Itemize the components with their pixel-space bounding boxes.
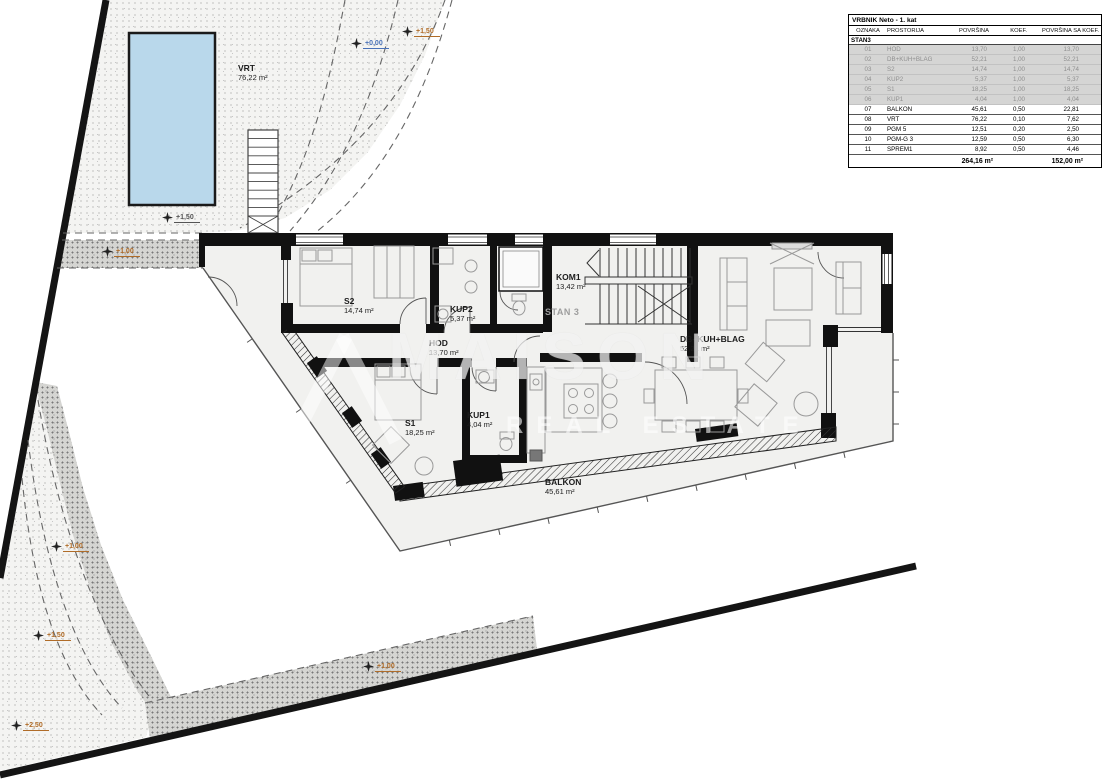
areas-table-row: 02DB+KUH+BLAG52,211,0052,21 [849,55,1101,65]
room-label-kup1: KUP1 4,04 m² [467,411,492,429]
areas-table-row: 10PGM-G 312,590,506,30 [849,135,1101,145]
survey-cross-icon [11,720,22,731]
room-label-s2: S2 14,74 m² [344,297,374,315]
areas-table-row: 07BALKON45,610,5022,81 [849,105,1101,115]
elevation-value: +1,50 [414,28,440,37]
room-label-vrt: VRT 76,22 m² [238,64,268,82]
areas-table-rows: 01HOD13,701,0013,7002DB+KUH+BLAG52,211,0… [849,45,1101,155]
survey-cross-icon [363,661,374,672]
room-label-s1: S1 18,25 m² [405,419,435,437]
areas-table-row: 06KUP14,041,004,04 [849,95,1101,105]
areas-table-row: 03S214,741,0014,74 [849,65,1101,75]
total-area-koef: 152,00 m² [1033,158,1101,165]
areas-table-total: 264,16 m² 152,00 m² [849,155,1101,167]
areas-table-row: 05S118,251,0018,25 [849,85,1101,95]
elevation-value: +1,50 [45,632,71,641]
site-plan: VRT 76,22 m² S2 14,74 m² KUP2 5,37 m² KO… [0,0,1111,782]
survey-cross-icon [102,246,113,257]
areas-table-row: 09PGM 512,510,202,50 [849,125,1101,135]
room-label-kom1: KOM1 13,42 m² [556,273,586,291]
east-window [883,254,892,284]
elevation-marker: +1,00 [363,661,401,672]
room-label-balkon: BALKON 45,61 m² [545,478,581,496]
elevation-marker: +0,00 [351,38,389,49]
elevation-marker: +1,50 [402,26,440,37]
exterior-stairs [248,130,278,233]
room-label-kup2: KUP2 5,37 m² [450,305,475,323]
elevation-value: +1,00 [114,248,140,257]
total-area: 264,16 m² [949,158,999,165]
elevation-marker: +1,00 [102,246,140,257]
areas-table-row: 04KUP25,371,005,37 [849,75,1101,85]
elevation-value: +2,50 [23,722,49,731]
survey-cross-icon [162,212,173,223]
property-boundary-line [0,0,106,578]
unit-label-stan3: STAN 3 [545,307,579,317]
elevation-marker: +2,50 [11,720,49,731]
elevation-value: +1,00 [63,543,89,552]
areas-table-row: 01HOD13,701,0013,70 [849,45,1101,55]
pool [129,33,215,205]
elevation-value: +1,50 [174,214,200,223]
road-line [0,566,916,775]
elevation-value: +0,00 [363,40,389,49]
survey-cross-icon [402,26,413,37]
elevation-marker: +1,50 [162,212,200,223]
room-label-hod: HOD 13,70 m² [429,339,459,357]
survey-cross-icon [351,38,362,49]
survey-cross-icon [51,541,62,552]
elevation-marker: +1,50 [33,630,71,641]
elevator-shaft [499,247,543,291]
areas-table: VRBNIK Neto - 1. kat OZNAKA PROSTORIJA P… [848,14,1102,168]
areas-table-section: STAN3 [849,36,1101,45]
areas-table-title: VRBNIK Neto - 1. kat [849,15,1101,26]
survey-cross-icon [33,630,44,641]
areas-table-row: 08VRT76,220,107,62 [849,115,1101,125]
areas-table-row: 11SPREM18,920,504,46 [849,145,1101,155]
elevation-marker: +1,00 [51,541,89,552]
elevation-value: +1,00 [375,663,401,672]
areas-table-header: OZNAKA PROSTORIJA POVRŠINA KOEF. POVRŠIN… [849,26,1101,36]
room-label-living: DB+KUH+BLAG 52,21 m² [680,335,745,353]
